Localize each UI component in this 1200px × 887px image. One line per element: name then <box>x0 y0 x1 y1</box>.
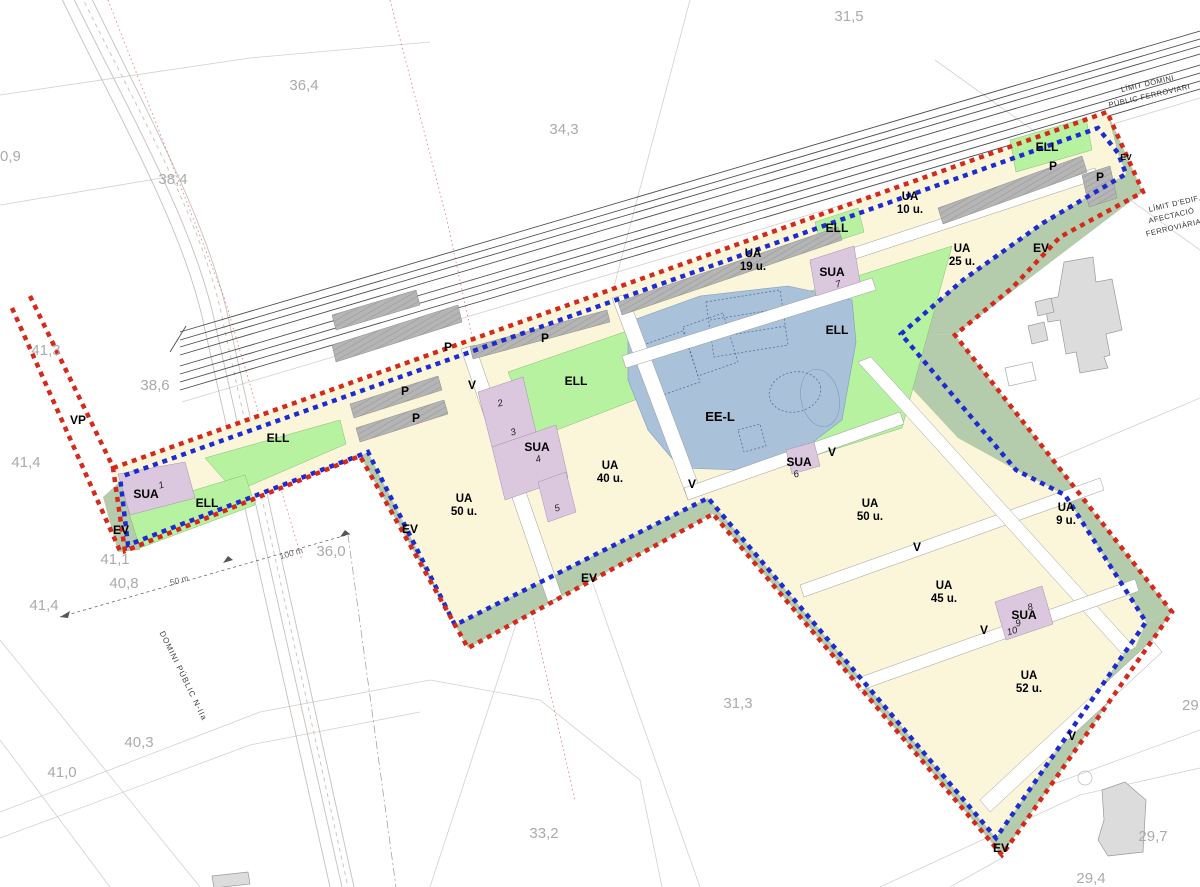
ua9-units: 9 u. <box>1056 515 1076 527</box>
tank-outline <box>1078 771 1092 785</box>
sua7-label: SUA <box>819 265 845 279</box>
ua10-label: UA <box>902 191 919 203</box>
ua25-label: UA <box>954 243 971 255</box>
ua52-units: 52 u. <box>1016 683 1042 695</box>
ell-label: ELL <box>196 496 219 510</box>
plan-canvas: ELL P P EV UA 10 u. ELL UA 19 u. UA 25 u… <box>0 0 1200 887</box>
ua40-units: 40 u. <box>597 473 623 485</box>
ua50r-units: 50 u. <box>857 511 883 523</box>
ua52-label: UA <box>1021 670 1038 682</box>
scale-50m-label: 50 m <box>169 573 190 588</box>
dimension-line <box>60 534 350 617</box>
elevation-point: 41,0 <box>47 764 76 781</box>
elevation-point: 38,4 <box>158 171 187 188</box>
elevation-point: 41,3 <box>31 342 60 359</box>
elevation-point: 31,5 <box>834 8 863 25</box>
vp-label: VP <box>70 413 86 427</box>
ua50l-units: 50 u. <box>451 506 477 518</box>
ev-label: EV <box>113 523 129 537</box>
sua6-label: SUA <box>786 455 812 469</box>
elevation-point: 40,8 <box>109 575 138 592</box>
elevation-point: 33,2 <box>529 825 558 842</box>
v-label: V <box>913 540 921 554</box>
shed-outline <box>1005 362 1036 386</box>
ev-label: EV <box>1120 152 1132 162</box>
p-label: P <box>444 340 452 354</box>
parcel-line <box>0 740 110 887</box>
v-label: V <box>688 477 696 491</box>
ell-label: ELL <box>565 374 588 388</box>
v-label: V <box>980 623 988 637</box>
elevation-point: 0,9 <box>0 148 21 165</box>
p-label: P <box>1049 159 1057 173</box>
ell-label: ELL <box>826 323 849 337</box>
vp-red-line-east <box>30 296 113 467</box>
arrowhead <box>223 556 233 563</box>
elevation-point: 29 <box>1182 697 1199 714</box>
ev-label: EV <box>581 571 597 585</box>
elevation-point: 40,3 <box>124 734 153 751</box>
ua40-label: UA <box>602 460 619 472</box>
ua25-units: 25 u. <box>949 256 975 268</box>
elevation-point: 29,7 <box>1138 828 1167 845</box>
parcel-line <box>0 42 430 95</box>
sua-column-label: SUA <box>524 440 550 454</box>
scale-100m-label: 100 m <box>278 545 303 561</box>
v-label: V <box>1068 729 1076 743</box>
ell-label: ELL <box>826 221 849 235</box>
building-small <box>212 872 250 887</box>
ua45-label: UA <box>936 580 953 592</box>
elevation-point: 31,3 <box>723 695 752 712</box>
elevation-point: 36,4 <box>289 77 318 94</box>
v-label: V <box>828 445 836 459</box>
ua10-units: 10 u. <box>897 204 923 216</box>
p-label: P <box>401 384 409 398</box>
elevation-point: 41,4 <box>11 454 40 471</box>
elevation-point: 41,1 <box>100 551 129 568</box>
parcel-line <box>0 175 180 205</box>
ua19-units: 19 u. <box>740 261 766 273</box>
arrowhead <box>60 611 70 618</box>
ell-label: ELL <box>267 431 290 445</box>
ev-label: EV <box>402 522 418 536</box>
p-label: P <box>1096 170 1104 184</box>
parcel-line <box>0 640 200 887</box>
arrowhead <box>340 530 350 537</box>
ua50r-label: UA <box>862 498 879 510</box>
ua45-units: 45 u. <box>931 593 957 605</box>
sua1-label: SUA <box>133 487 159 501</box>
parcel-line <box>1030 398 1200 470</box>
elevation-point: 36,0 <box>316 543 345 560</box>
elevation-point: 38,6 <box>140 377 169 394</box>
ev-label: EV <box>1033 241 1049 255</box>
ua19-label: UA <box>745 248 762 260</box>
parcel-line <box>950 858 1002 887</box>
building-small <box>1028 322 1048 344</box>
v-label: V <box>468 378 476 392</box>
elevation-point: 34,3 <box>549 121 578 138</box>
ua9-label: UA <box>1058 502 1075 514</box>
ell-label: ELL <box>1036 140 1059 154</box>
elevation-point: 41,4 <box>29 597 58 614</box>
road-domain-label: DOMINI PÚBLIC N-IIa <box>158 630 209 723</box>
ev-label: EV <box>993 841 1009 855</box>
elevation-point: 29,4 <box>1076 870 1105 887</box>
vp-red-line-west <box>12 308 120 551</box>
survey-axis-line <box>348 535 396 887</box>
vp-corridor-boundary <box>12 296 120 551</box>
p-label: P <box>412 411 420 425</box>
eel-label: EE-L <box>705 409 735 424</box>
ua50l-label: UA <box>456 493 473 505</box>
urban-plan-map: ELL P P EV UA 10 u. ELL UA 19 u. UA 25 u… <box>0 0 1200 887</box>
building-large <box>1044 257 1122 373</box>
p-label: P <box>541 331 549 345</box>
